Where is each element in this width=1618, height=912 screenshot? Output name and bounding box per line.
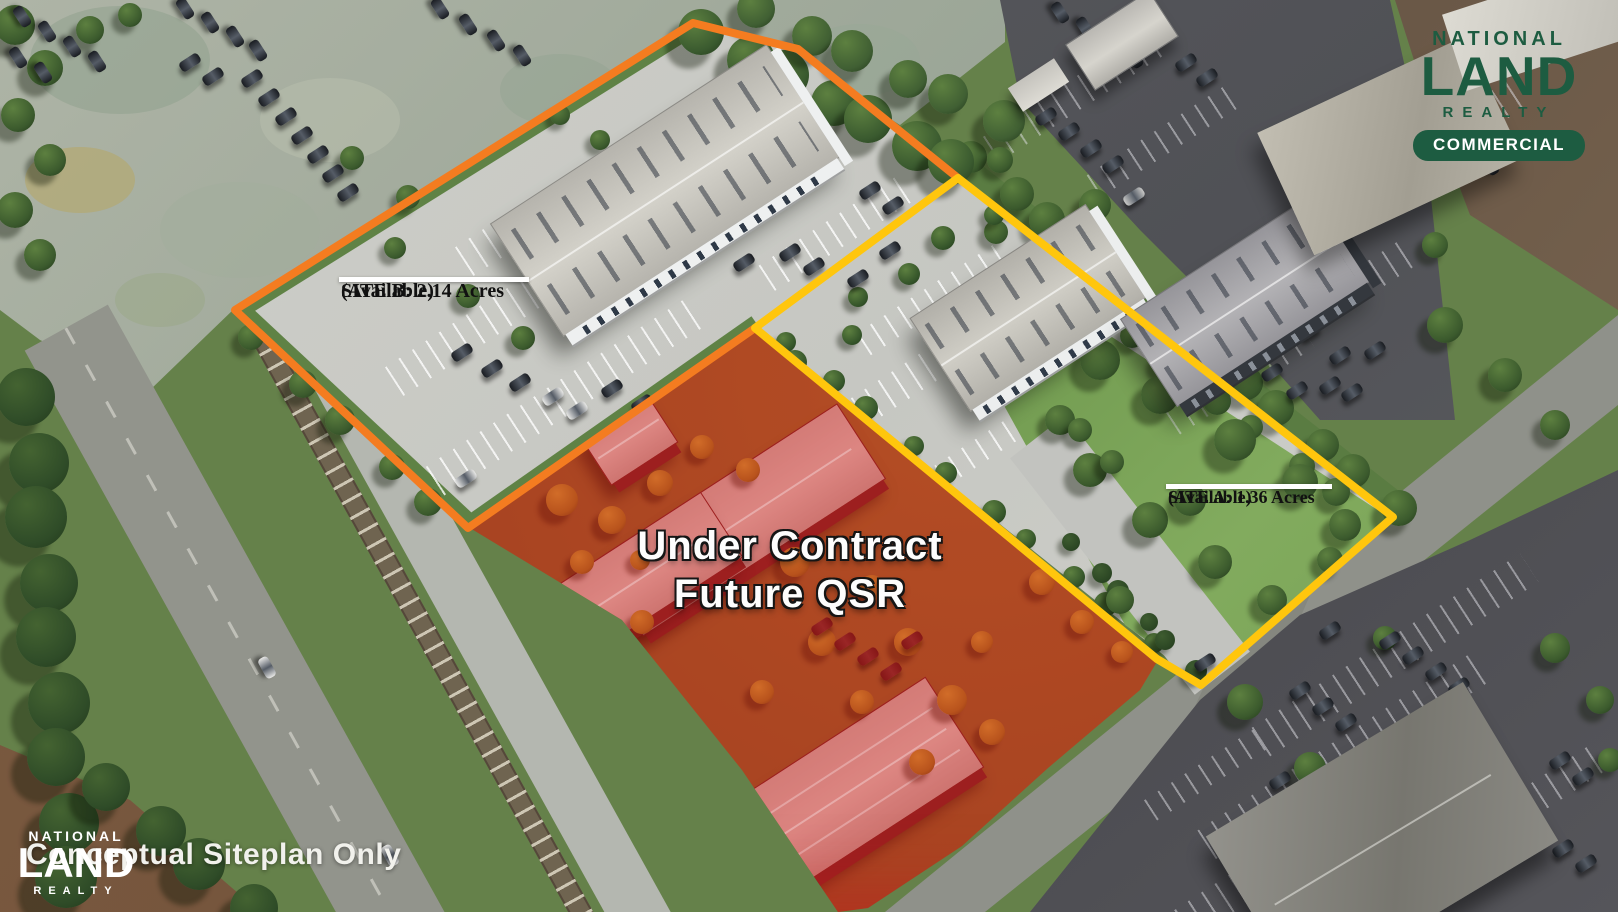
national-land-realty-logo: NATIONAL LAND REALTY COMMERCIAL bbox=[1408, 28, 1590, 161]
national-land-realty-watermark: NATIONAL LAND REALTY bbox=[10, 828, 142, 897]
site-a-label-line2: (Available) bbox=[1168, 487, 1252, 508]
under-contract-text-line2: Future QSR bbox=[540, 572, 1040, 617]
under-contract-text-line1: Under Contract bbox=[540, 524, 1040, 569]
site-b-label-line2: (Available) bbox=[341, 280, 434, 303]
logo-land: LAND bbox=[1408, 51, 1590, 102]
site-b-label: SITE B: 2.14 Acres (Available) bbox=[339, 277, 529, 282]
site-outlines bbox=[0, 0, 1618, 912]
conceptual-siteplan: SITE B: 2.14 Acres (Available) SITE A: 1… bbox=[0, 0, 1618, 912]
watermark-land: LAND bbox=[10, 844, 142, 883]
site-b-outline bbox=[235, 23, 958, 528]
watermark-realty: REALTY bbox=[10, 885, 142, 897]
commercial-badge: COMMERCIAL bbox=[1413, 130, 1585, 161]
site-a-label: SITE A: 1.36 Acres (Available) bbox=[1166, 484, 1332, 489]
